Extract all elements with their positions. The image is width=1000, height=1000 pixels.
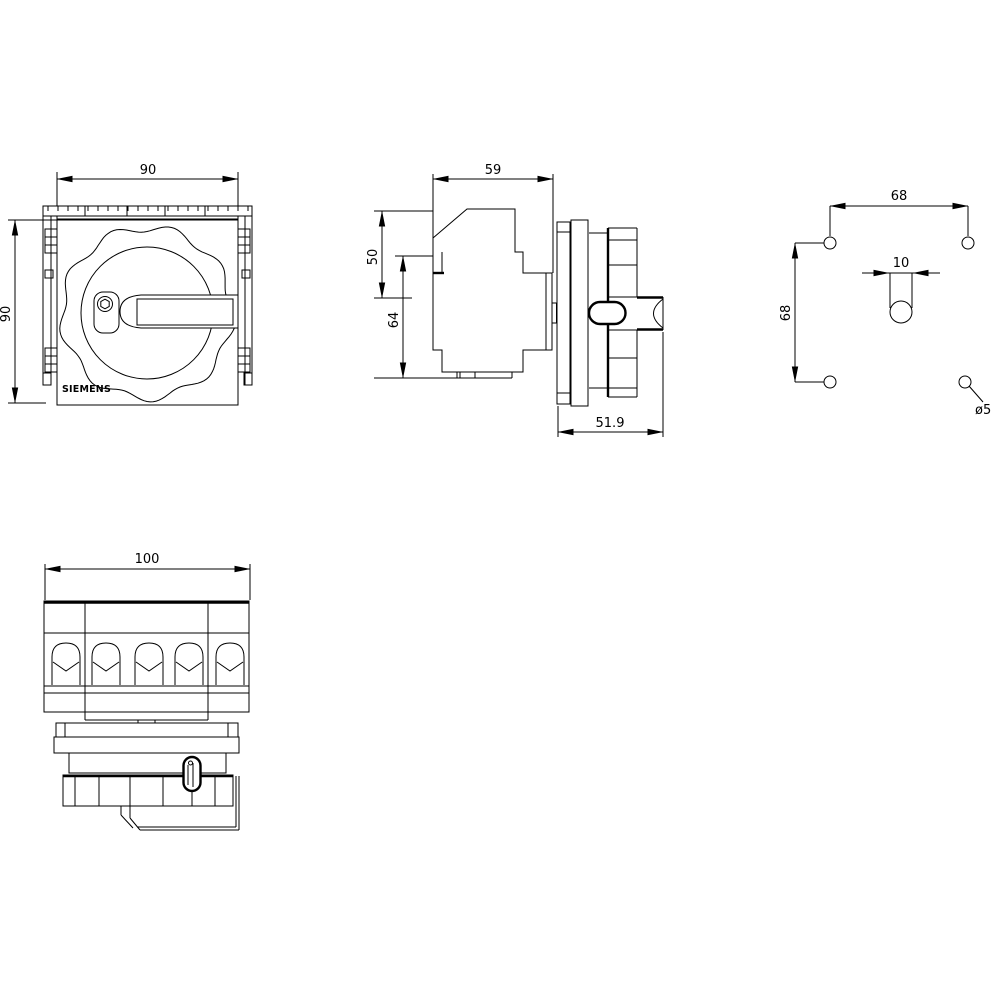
switch-body-outline (433, 209, 546, 372)
knob-grip-top (63, 775, 233, 806)
technical-drawing-page: 90 90 (0, 0, 1000, 1000)
terminal-clamp-5 (216, 643, 244, 685)
shaft-slot-dimension: 10 (862, 256, 940, 273)
top-view: 100 (44, 552, 250, 830)
front-plate-edge (546, 273, 552, 350)
door-coupling-plates (557, 220, 588, 406)
terminal-clamp-2 (92, 643, 120, 685)
knob-handle-bar (120, 295, 238, 328)
adapter-plate (56, 723, 238, 737)
hole-diameter-label: ø5 (975, 403, 991, 418)
drill-horizontal-label: 68 (891, 189, 908, 204)
padlock-hasp-top (184, 757, 201, 791)
terminal-clamp-1 (52, 643, 80, 685)
hole-diameter-callout: ø5 (969, 386, 991, 418)
side-height-dimension: 64 (374, 256, 442, 378)
shaft-slot (890, 273, 912, 323)
side-operator-depth-dimension: 51.9 (558, 332, 663, 437)
handle-lever (121, 776, 239, 830)
left-mounting-strip (43, 210, 57, 385)
door-flange (54, 737, 239, 753)
padlock-lug (94, 292, 119, 333)
front-height-label: 90 (0, 306, 14, 323)
dimension-drawing: 90 90 (0, 0, 1000, 1000)
right-mounting-strip (238, 210, 252, 385)
side-upper-label: 50 (366, 249, 381, 266)
body-section-lines (44, 601, 249, 712)
side-upper-dimension: 50 (366, 211, 433, 298)
top-width-label: 100 (135, 552, 160, 567)
mounting-hole-top-right (962, 237, 974, 249)
bottom-feet (442, 372, 512, 378)
body-top-outline (44, 601, 249, 712)
top-terminal-band (43, 206, 252, 220)
drill-vertical-dimension: 68 (779, 243, 824, 382)
shaft-slot-label: 10 (893, 256, 910, 271)
shaft (637, 297, 663, 330)
center-block (85, 712, 208, 720)
drilling-plan-view: 68 68 10 ø5 (779, 189, 991, 418)
front-width-label: 90 (140, 163, 157, 178)
padlock-hasp-side (589, 302, 626, 324)
front-width-dimension: 90 (57, 163, 238, 206)
shaft-end-curve (654, 299, 664, 328)
drill-horizontal-dimension: 68 (830, 189, 968, 236)
side-depth-label: 59 (485, 163, 502, 178)
mounting-hole-bottom-left (824, 376, 836, 388)
terminal-clamp-4 (175, 643, 203, 685)
brand-label: SIEMENS (62, 384, 111, 395)
side-depth-dimension: 59 (433, 163, 553, 273)
side-height-label: 64 (387, 312, 402, 329)
drill-vertical-label: 68 (779, 305, 794, 322)
side-view: 59 50 64 (366, 163, 663, 437)
front-height-dimension: 90 (0, 220, 57, 403)
mounting-hole-top-left (824, 237, 836, 249)
shaft-boss (552, 303, 557, 323)
terminal-clamp-3 (135, 643, 163, 685)
terminal-ticks (48, 206, 248, 211)
side-operator-depth-label: 51.9 (596, 416, 625, 431)
knob-base (69, 753, 226, 773)
top-width-dimension: 100 (45, 552, 250, 600)
front-view: 90 90 (0, 163, 252, 405)
